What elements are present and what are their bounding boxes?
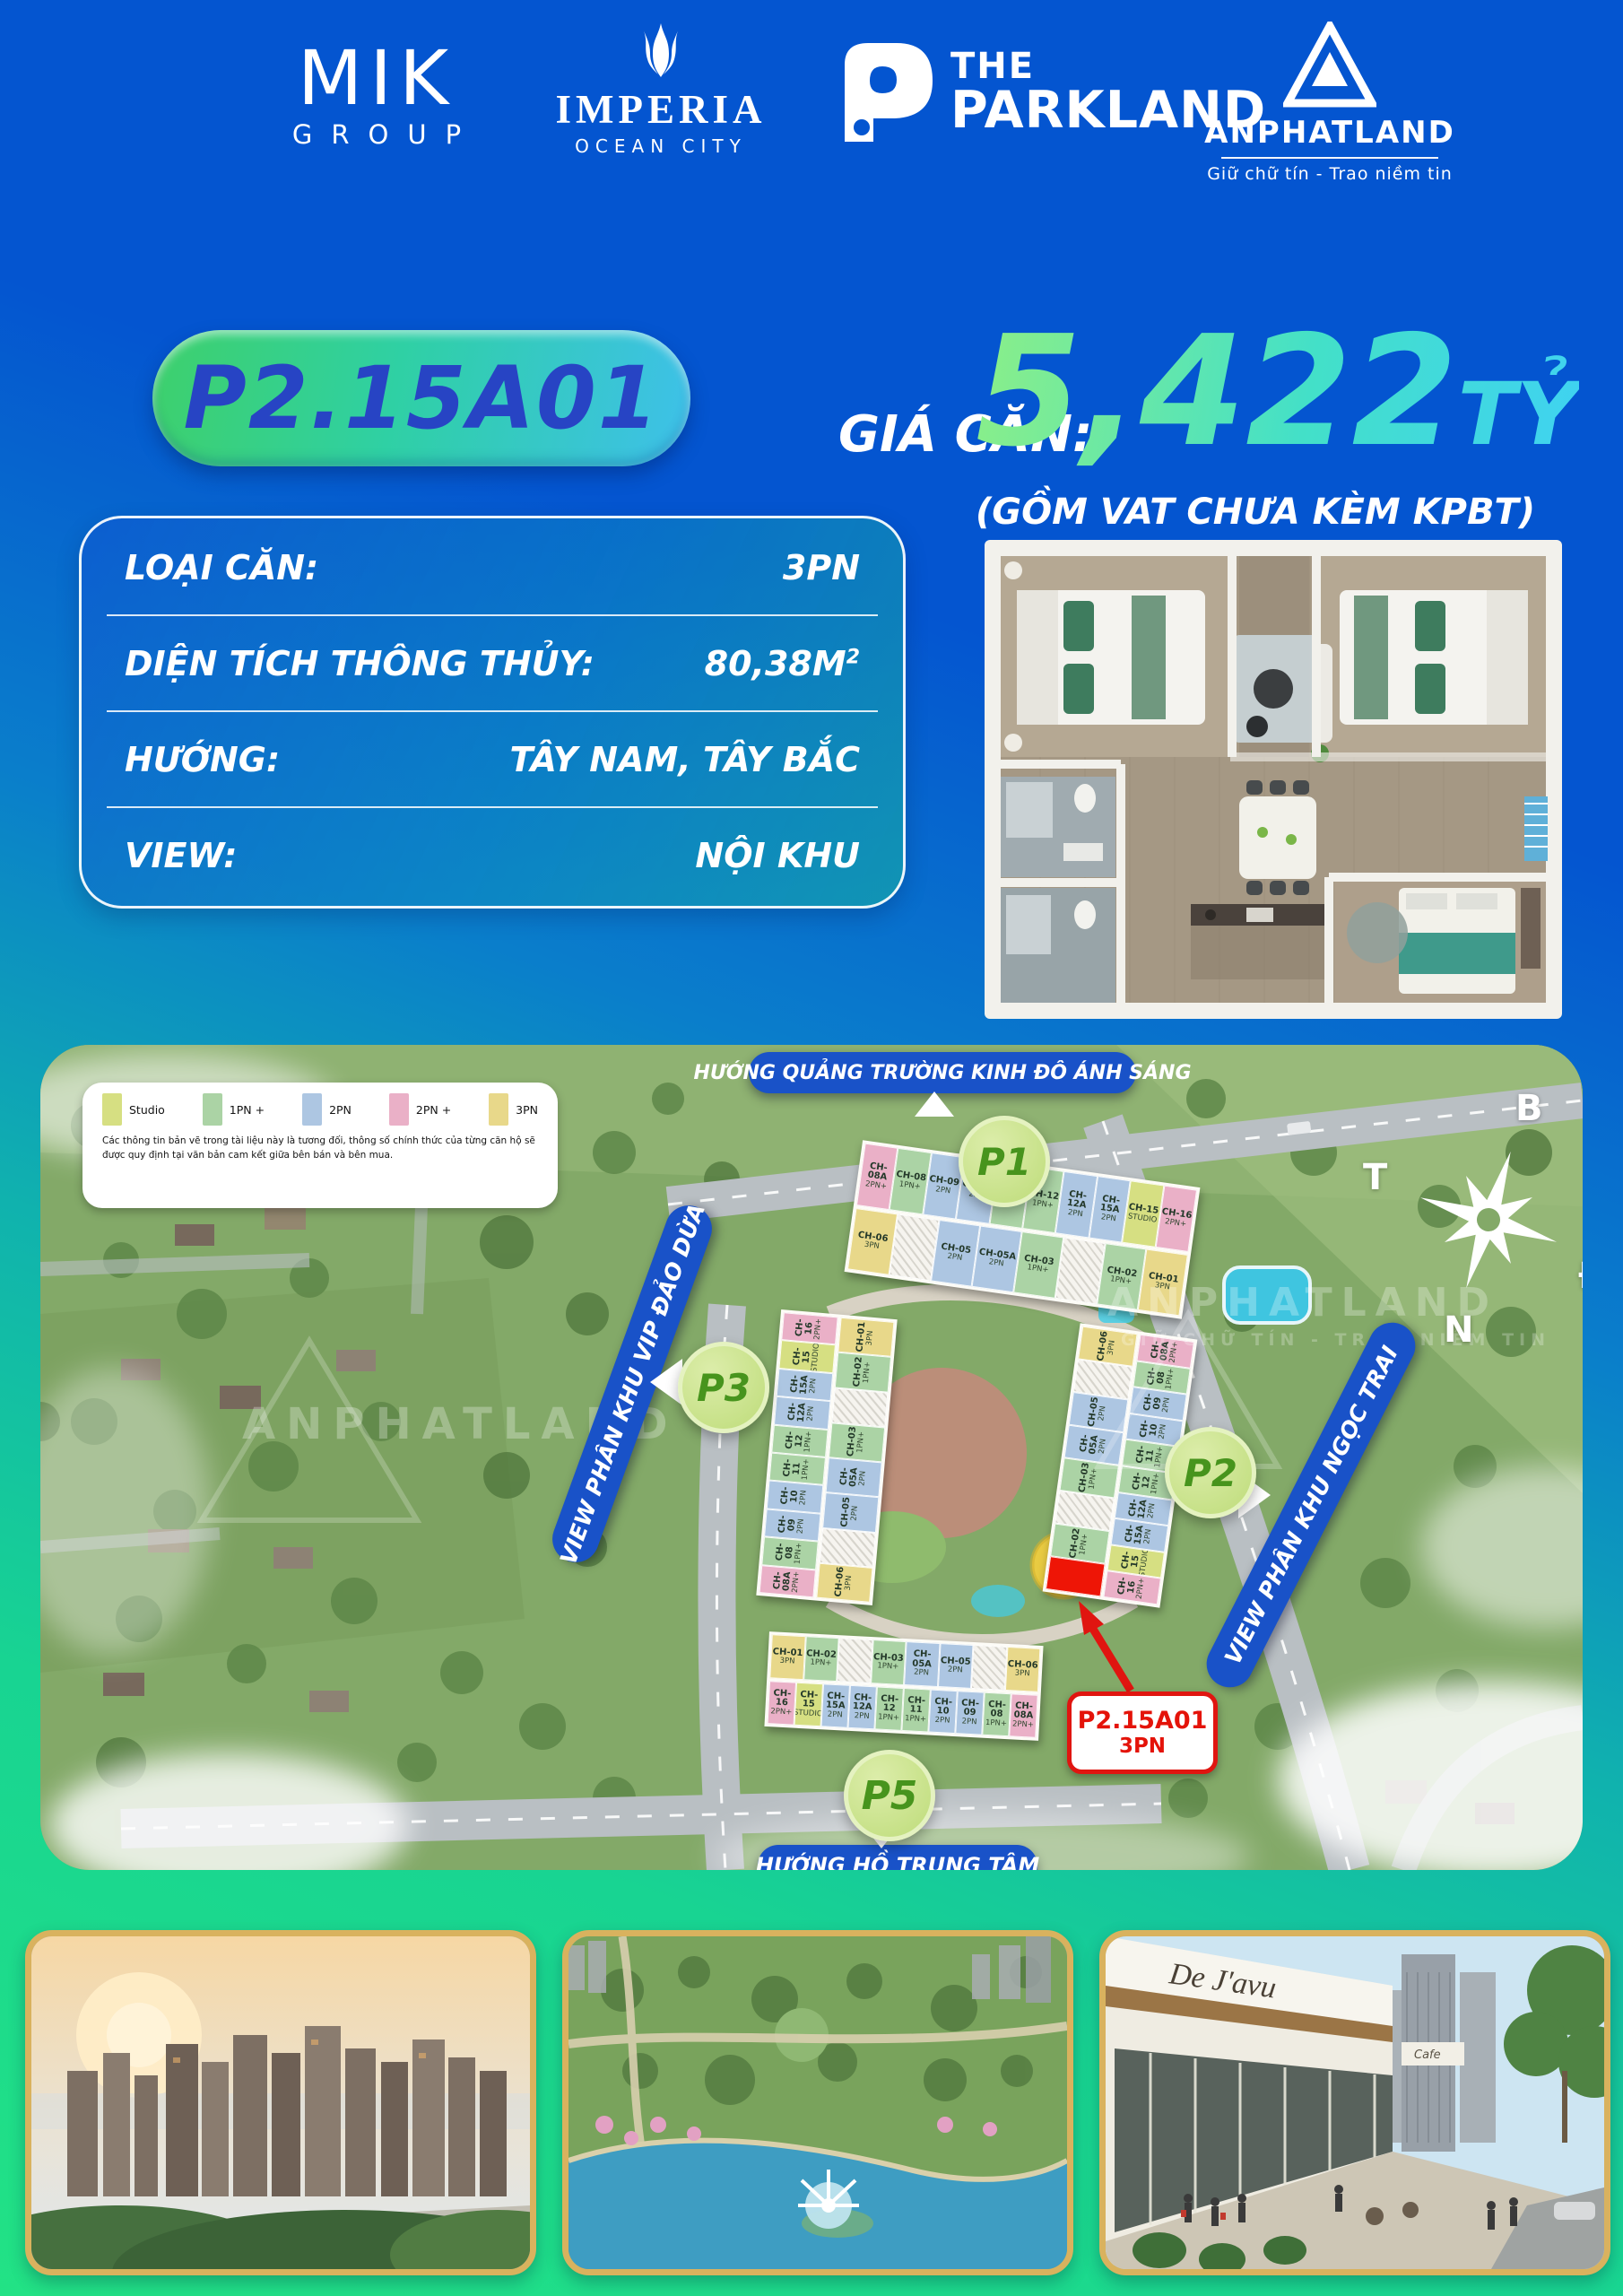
legend-item: 3PN: [489, 1093, 538, 1126]
floor-plan-image: [977, 527, 1569, 1030]
building-core-cell: [831, 1387, 889, 1427]
building-p3: CH-162PN+CH-15STUDIOCH-15A2PNCH-12A2PNCH…: [756, 1309, 897, 1605]
detail-row-view: VIEW: NỘI KHU: [82, 808, 903, 902]
detail-row-direction: HƯỚNG: TÂY NAM, TÂY BẮC: [82, 712, 903, 806]
unit-cell: CH-102PN: [767, 1481, 823, 1514]
unit-cell: CH-081PN+: [761, 1536, 818, 1570]
unit-cell: CH-08A2PN+: [759, 1565, 816, 1598]
unit-cell: CH-08A2PN+: [1009, 1693, 1037, 1738]
detail-label: DIỆN TÍCH THÔNG THỦY:: [125, 644, 595, 683]
anphat-logo-divider: [1221, 157, 1438, 159]
legend-swatch: [389, 1093, 409, 1126]
photo-aerial-park-lake: [562, 1930, 1073, 2275]
unit-cell: CH-021PN+: [803, 1636, 839, 1681]
unit-cell: CH-121PN+: [874, 1686, 903, 1731]
highlighted-unit-callout: P2.15A01 3PN: [1067, 1692, 1218, 1774]
callout-unit-type: 3PN: [1119, 1735, 1166, 1758]
price-number: 5,422: [976, 303, 1458, 481]
parkland-p-icon: [832, 38, 933, 147]
unit-cell: CH-162PN+: [1155, 1186, 1197, 1252]
detail-value: 80,38M2: [705, 644, 860, 683]
an-phat-land-logo: ANPHATLAND Giữ chữ tín - Trao niềm tin: [1191, 22, 1469, 184]
mik-group-logo: MIK GROUP: [260, 40, 493, 150]
detail-value: NỘI KHU: [695, 836, 860, 875]
unit-cell: CH-092PN: [955, 1691, 984, 1735]
unit-cell: CH-12A2PN: [774, 1396, 830, 1430]
legend-item: Studio: [102, 1093, 165, 1126]
unit-code: P2.15A01: [183, 348, 659, 448]
unit-cell: CH-15STUDIO: [794, 1682, 823, 1726]
unit-cell: CH-102PN: [928, 1689, 957, 1734]
price-value: 5,422TỶ: [976, 316, 1579, 468]
unit-cell: CH-12A2PN: [847, 1684, 876, 1729]
unit-cell: CH-121PN+: [771, 1424, 828, 1457]
compass-west-label: T: [1363, 1157, 1387, 1198]
legend-swatch: [302, 1093, 322, 1126]
unit-code-badge: P2.15A01: [152, 330, 690, 466]
imperia-tulip-icon: [635, 65, 687, 83]
imperia-logo-text: IMPERIA: [531, 86, 791, 133]
unit-cell: CH-081PN+: [982, 1692, 1011, 1736]
unit-cell: CH-052PN: [938, 1643, 974, 1688]
unit-cell: CH-063PN: [1004, 1647, 1040, 1692]
detail-row-type: LOẠI CĂN: 3PN: [82, 520, 903, 614]
site-map: ANPHATLAND ANPHATLAND GIỮ CHỮ TÍN - TRAO…: [40, 1045, 1583, 1870]
anphat-logo-tagline: Giữ chữ tín - Trao niềm tin: [1191, 164, 1469, 184]
unit-cell: CH-05A2PN: [825, 1457, 882, 1497]
building-core-cell: [837, 1638, 872, 1683]
compass-east-label: Đ: [1578, 1256, 1583, 1297]
compass-south-label: N: [1444, 1309, 1473, 1351]
unit-cell: CH-05A2PN: [904, 1641, 940, 1686]
banner-direction-south: HƯỚNG HỒ TRUNG TÂM: [758, 1845, 1037, 1870]
imperia-logo-subtext: OCEAN CITY: [531, 135, 791, 157]
anphat-triangle-icon: [1283, 94, 1376, 111]
building-core-cell: [819, 1527, 876, 1567]
price-unit: TỶ: [1458, 364, 1579, 465]
unit-cell: CH-013PN: [838, 1318, 895, 1357]
legend-label: 1PN +: [230, 1103, 265, 1117]
arrow-up-icon: [915, 1091, 954, 1117]
unit-cell: CH-031PN+: [871, 1639, 907, 1684]
badge-p1: P1: [959, 1116, 1050, 1207]
detail-label: LOẠI CĂN:: [125, 548, 318, 587]
unit-cell: CH-15A2PN: [777, 1369, 833, 1402]
svg-text:Cafe: Cafe: [1414, 2048, 1441, 2062]
unit-cell: CH-111PN+: [901, 1687, 930, 1732]
detail-row-area: DIỆN TÍCH THÔNG THỦY: 80,38M2: [82, 616, 903, 710]
unit-cell: CH-021PN+: [834, 1352, 891, 1392]
legend-item: 1PN +: [203, 1093, 265, 1126]
badge-p3: P3: [678, 1342, 769, 1433]
photo-aerial-towers-sunset: [25, 1930, 536, 2275]
building-core-cell: [971, 1645, 1007, 1690]
legend-item: 2PN: [302, 1093, 352, 1126]
unit-cell: CH-162PN+: [781, 1312, 838, 1345]
unit-cell: CH-031PN+: [828, 1422, 885, 1462]
legend-label: 2PN +: [416, 1103, 451, 1117]
compass-north-label: B: [1515, 1088, 1543, 1129]
mik-logo-subtext: GROUP: [260, 119, 493, 150]
unit-details-panel: LOẠI CĂN: 3PN DIỆN TÍCH THÔNG THỦY: 80,3…: [79, 516, 906, 909]
detail-label: VIEW:: [125, 836, 237, 875]
legend-label: 3PN: [516, 1103, 538, 1117]
unit-cell: CH-013PN: [769, 1634, 805, 1679]
legend-swatch: [203, 1093, 222, 1126]
unit-cell: CH-063PN: [816, 1562, 873, 1602]
legend-swatch: [489, 1093, 508, 1126]
detail-label: HƯỚNG:: [125, 740, 280, 779]
photo-retail-street: De J'avu Cafe: [1099, 1930, 1610, 2275]
detail-value: 3PN: [783, 548, 860, 587]
badge-p2: P2: [1165, 1427, 1256, 1518]
unit-cell: CH-15STUDIO: [778, 1340, 835, 1373]
legend-label: Studio: [129, 1103, 165, 1117]
callout-unit-code: P2.15A01: [1078, 1707, 1208, 1735]
compass: B T Đ N: [1314, 1081, 1583, 1350]
mik-logo-text: MIK: [260, 40, 493, 116]
highlighted-unit-cell: [1046, 1556, 1105, 1596]
map-legend: Studio1PN +2PN2PN +3PN Các thông tin bản…: [82, 1083, 558, 1208]
unit-cell: CH-162PN+: [768, 1681, 796, 1726]
legend-disclaimer: Các thông tin bản vẽ trong tài liệu này …: [102, 1134, 538, 1163]
detail-value: TÂY NAM, TÂY BẮC: [510, 740, 860, 779]
building-p5: CH-013PNCH-021PN+CH-031PN+CH-05A2PNCH-05…: [764, 1631, 1043, 1741]
legend-swatch: [102, 1093, 122, 1126]
unit-cell: CH-111PN+: [768, 1453, 825, 1486]
imperia-ocean-city-logo: IMPERIA OCEAN CITY: [531, 23, 791, 157]
legend-item: 2PN +: [389, 1093, 451, 1126]
badge-p5: P5: [844, 1750, 935, 1841]
unit-cell: CH-092PN: [764, 1509, 820, 1542]
legend-label: 2PN: [329, 1103, 352, 1117]
poster: MIK GROUP IMPERIA OCEAN CITY THE PARKLAN…: [0, 0, 1623, 2296]
unit-cell: CH-052PN: [822, 1492, 880, 1532]
banner-direction-north: HƯỚNG QUẢNG TRƯỜNG KINH ĐÔ ÁNH SÁNG: [749, 1052, 1136, 1093]
unit-cell: CH-15A2PN: [821, 1683, 850, 1728]
legend-items: Studio1PN +2PN2PN +3PN: [102, 1093, 538, 1126]
anphat-logo-text: ANPHATLAND: [1191, 115, 1469, 151]
